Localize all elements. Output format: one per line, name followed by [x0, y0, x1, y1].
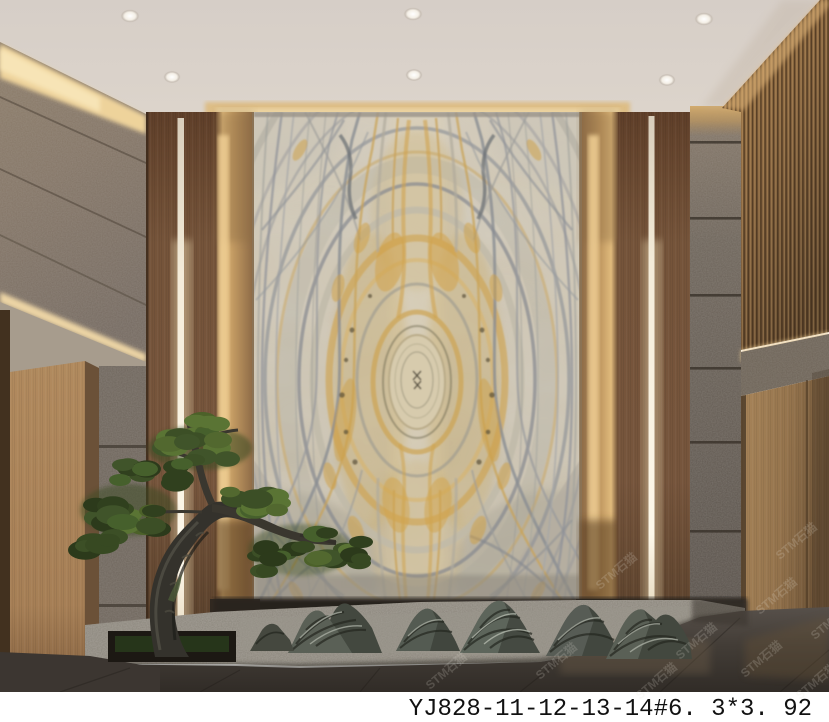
svg-text:YJ828-11-12-13-14#6. 3*3. 92: YJ828-11-12-13-14#6. 3*3. 92 [409, 696, 812, 722]
